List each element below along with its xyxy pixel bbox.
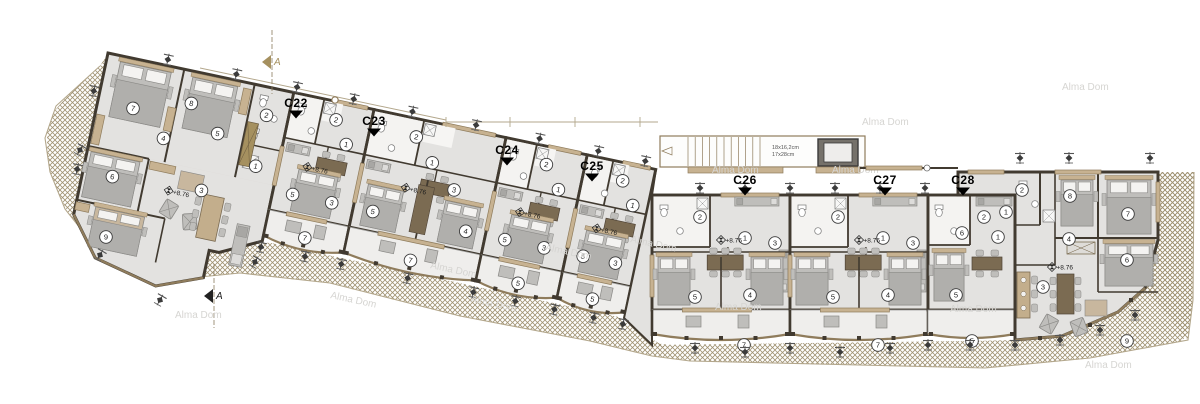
svg-text:C24: C24 <box>495 143 519 157</box>
svg-text:4: 4 <box>886 291 890 300</box>
svg-text:4: 4 <box>1067 235 1071 244</box>
svg-text:C25: C25 <box>580 159 604 173</box>
svg-text:C27: C27 <box>873 173 897 187</box>
svg-text:4: 4 <box>748 291 752 300</box>
svg-text:6: 6 <box>1125 256 1129 265</box>
svg-text:C28: C28 <box>951 173 975 187</box>
svg-text:7: 7 <box>1126 210 1130 219</box>
svg-text:C22: C22 <box>284 96 308 110</box>
svg-text:Alma Dom: Alma Dom <box>175 310 222 321</box>
svg-text:2: 2 <box>1020 186 1024 195</box>
svg-text:3: 3 <box>911 239 915 248</box>
svg-text:Alma Dom: Alma Dom <box>715 302 762 313</box>
svg-text:5: 5 <box>831 293 835 302</box>
svg-text:2: 2 <box>982 213 986 222</box>
svg-text:Alma Dom: Alma Dom <box>862 117 909 128</box>
svg-text:+8.76: +8.76 <box>1057 265 1074 272</box>
svg-text:+8.76: +8.76 <box>864 238 881 245</box>
svg-text:Alma Dom: Alma Dom <box>1062 82 1109 93</box>
svg-text:7: 7 <box>876 341 880 350</box>
svg-text:Alma Dom: Alma Dom <box>950 304 997 315</box>
svg-text:7: 7 <box>742 341 746 350</box>
svg-text:6: 6 <box>960 229 964 238</box>
svg-text:1: 1 <box>881 234 885 243</box>
svg-text:1: 1 <box>996 233 1000 242</box>
svg-text:A: A <box>273 57 281 68</box>
svg-text:3: 3 <box>773 239 777 248</box>
svg-text:9: 9 <box>1125 337 1129 346</box>
svg-text:2: 2 <box>698 213 702 222</box>
svg-text:A: A <box>215 291 223 302</box>
svg-text:8: 8 <box>1068 192 1072 201</box>
svg-text:Alma Dom: Alma Dom <box>1085 360 1132 371</box>
svg-text:9: 9 <box>104 233 108 242</box>
svg-text:2: 2 <box>836 213 840 222</box>
svg-text:C26: C26 <box>733 173 757 187</box>
svg-text:1: 1 <box>1004 208 1008 217</box>
svg-text:3: 3 <box>1041 283 1045 292</box>
svg-text:C23: C23 <box>362 114 386 128</box>
svg-text:5: 5 <box>954 291 958 300</box>
svg-text:+8.76: +8.76 <box>726 238 743 245</box>
svg-text:18x16,2cm: 18x16,2cm <box>772 145 799 151</box>
svg-text:17x28cm: 17x28cm <box>772 152 795 158</box>
svg-text:1: 1 <box>743 234 747 243</box>
svg-text:5: 5 <box>693 293 697 302</box>
